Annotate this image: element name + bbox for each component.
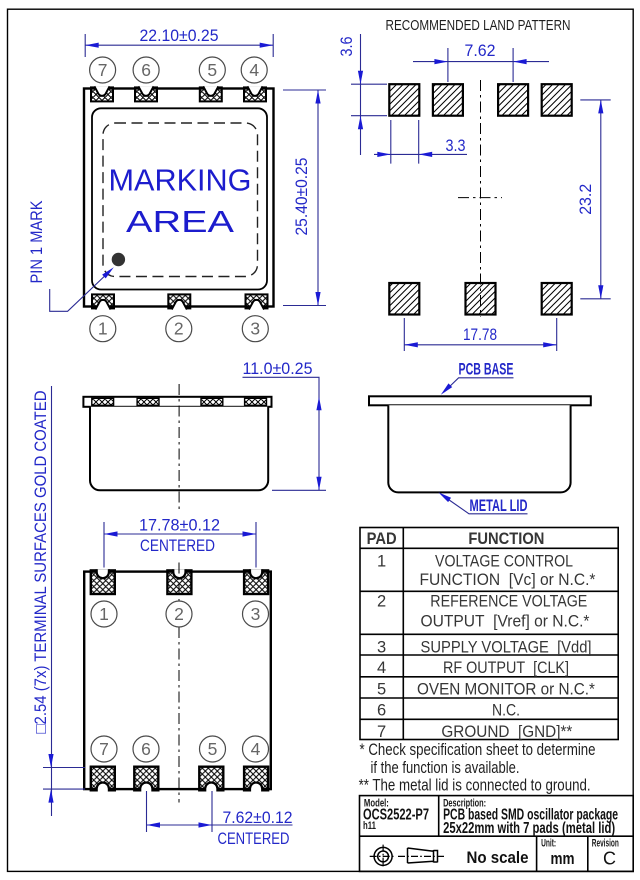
svg-text:Unit:: Unit:	[541, 838, 556, 850]
svg-text:VOLTAGE CONTROL: VOLTAGE CONTROL	[435, 553, 573, 571]
svg-text:2: 2	[174, 319, 184, 339]
svg-text:3.3: 3.3	[446, 137, 466, 155]
svg-text:No scale: No scale	[467, 848, 529, 867]
svg-text:17.78±0.12: 17.78±0.12	[139, 517, 220, 535]
svg-text:PIN 1 MARK: PIN 1 MARK	[28, 201, 46, 284]
svg-text:6: 6	[141, 60, 151, 80]
svg-text:6: 6	[141, 739, 151, 759]
svg-text:2: 2	[174, 604, 184, 624]
svg-text:REFERENCE VOLTAGE: REFERENCE VOLTAGE	[430, 593, 587, 611]
svg-text:OUTPUT [Vref] or N.C.*: OUTPUT [Vref] or N.C.*	[421, 613, 591, 631]
svg-text:4: 4	[377, 659, 386, 677]
svg-text:5: 5	[377, 681, 386, 699]
svg-text:PAD: PAD	[367, 530, 397, 548]
svg-text:3.6: 3.6	[338, 37, 356, 57]
svg-text:7: 7	[99, 739, 109, 759]
svg-text:h11: h11	[363, 820, 376, 832]
svg-text:MARKING: MARKING	[109, 163, 252, 198]
svg-text:1: 1	[377, 553, 386, 571]
svg-text:PCB BASE: PCB BASE	[459, 361, 514, 379]
svg-text:25x22mm with 7 pads (metal lid: 25x22mm with 7 pads (metal lid)	[443, 820, 615, 837]
svg-text:* Check specification sheet to: * Check specification sheet to determine	[360, 741, 596, 759]
svg-text:FUNCTION: FUNCTION	[468, 530, 544, 548]
svg-text:AREA: AREA	[126, 204, 234, 239]
svg-text:C: C	[603, 849, 616, 869]
svg-text:11.0±0.25: 11.0±0.25	[243, 360, 313, 378]
svg-text:7.62: 7.62	[465, 42, 496, 60]
svg-text:N.C.: N.C.	[492, 702, 520, 720]
svg-text:RF OUTPUT [CLK]: RF OUTPUT [CLK]	[443, 659, 569, 677]
svg-text:7.62±0.12: 7.62±0.12	[223, 809, 293, 827]
svg-text:25.40±0.25: 25.40±0.25	[293, 158, 311, 236]
svg-text:** The metal lid is connected: ** The metal lid is connected to ground.	[359, 776, 591, 794]
svg-text:FUNCTION [Vc] or N.C.*: FUNCTION [Vc] or N.C.*	[420, 571, 597, 589]
svg-text:RECOMMENDED LAND PATTERN: RECOMMENDED LAND PATTERN	[386, 18, 571, 34]
svg-text:4: 4	[249, 60, 259, 80]
svg-text:5: 5	[208, 739, 218, 759]
svg-text:OVEN MONITOR or N.C.*: OVEN MONITOR or N.C.*	[417, 681, 596, 699]
svg-text:7: 7	[98, 60, 108, 80]
svg-text:1: 1	[98, 319, 108, 339]
svg-text:3: 3	[250, 319, 260, 339]
svg-text:CENTERED: CENTERED	[218, 830, 290, 848]
svg-text:23.2: 23.2	[577, 184, 595, 215]
svg-text:□2.54 (7x) TERMINAL SURFACES G: □2.54 (7x) TERMINAL SURFACES GOLD COATED	[32, 390, 50, 733]
svg-text:5: 5	[207, 60, 217, 80]
svg-text:17.78: 17.78	[463, 326, 497, 344]
svg-text:SUPPLY VOLTAGE [Vdd]: SUPPLY VOLTAGE [Vdd]	[421, 639, 592, 657]
svg-text:if the function is available.: if the function is available.	[371, 759, 520, 777]
svg-text:22.10±0.25: 22.10±0.25	[140, 27, 219, 45]
svg-text:3: 3	[377, 639, 386, 657]
svg-text:GROUND [GND]**: GROUND [GND]**	[441, 723, 573, 741]
svg-text:4: 4	[251, 739, 261, 759]
svg-text:3: 3	[251, 604, 261, 624]
svg-text:METAL LID: METAL LID	[470, 497, 528, 515]
svg-text:6: 6	[377, 702, 386, 720]
svg-text:1: 1	[99, 604, 109, 624]
svg-text:mm: mm	[551, 849, 575, 868]
svg-text:CENTERED: CENTERED	[140, 537, 215, 555]
svg-text:7: 7	[377, 723, 386, 741]
svg-text:2: 2	[377, 593, 386, 611]
